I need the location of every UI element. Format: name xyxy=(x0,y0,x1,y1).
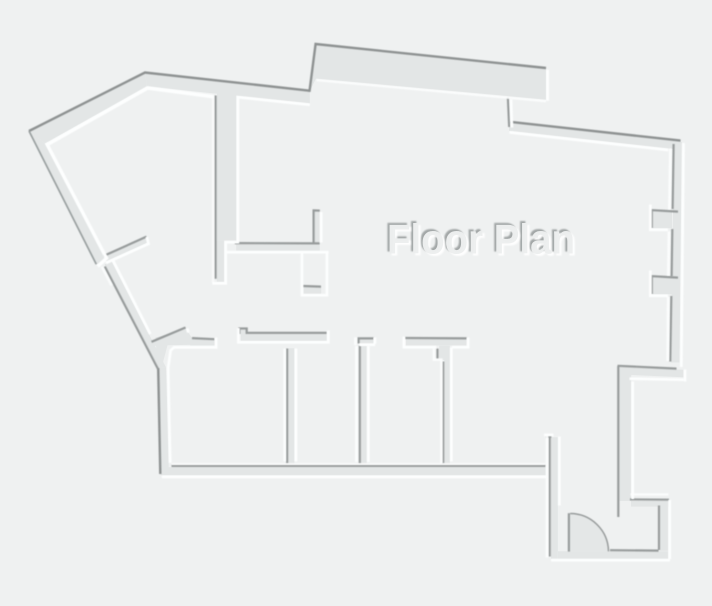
svg-text:Floor Plan: Floor Plan xyxy=(387,215,575,262)
